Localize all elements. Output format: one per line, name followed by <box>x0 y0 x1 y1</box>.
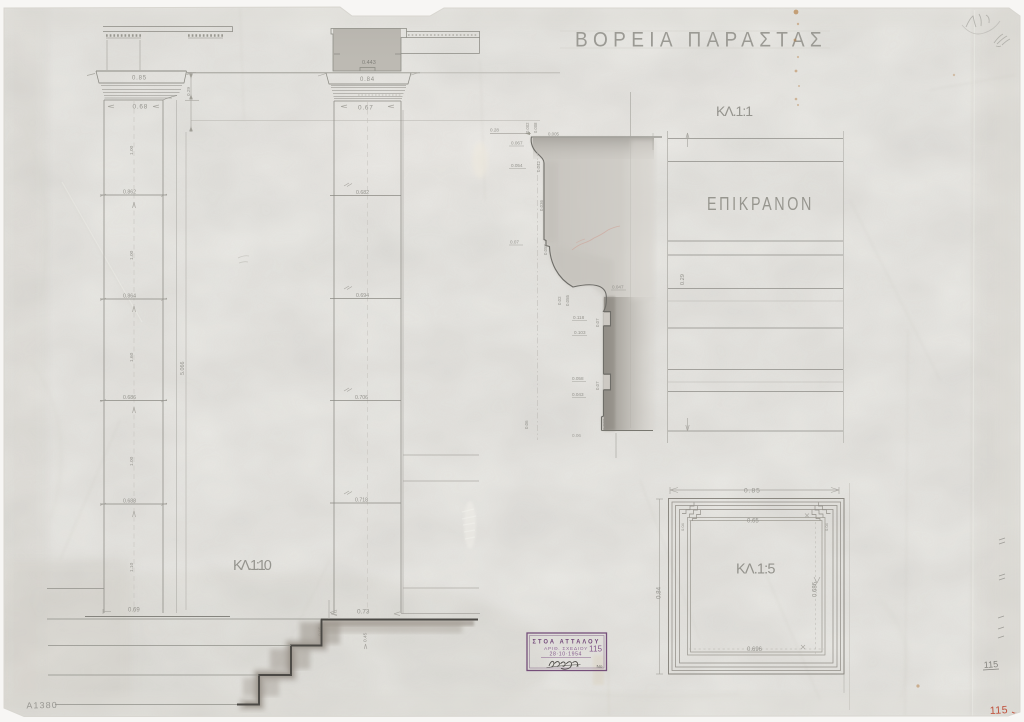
svg-text:0.04: 0.04 <box>680 522 685 531</box>
svg-text:0.443: 0.443 <box>362 60 376 66</box>
svg-text:ΚΛ.1:5: ΚΛ.1:5 <box>736 562 777 578</box>
svg-text:ΑΡΙΘ. ΣΧΕΔΙΟΥ: ΑΡΙΘ. ΣΧΕΔΙΟΥ <box>544 646 588 651</box>
svg-text:0.864: 0.864 <box>123 294 136 300</box>
svg-text:1.00: 1.00 <box>129 145 135 155</box>
svg-text:0.005: 0.005 <box>548 132 560 137</box>
svg-text:0.69: 0.69 <box>128 608 140 614</box>
svg-text:0.682: 0.682 <box>356 190 369 196</box>
svg-text:Νο: Νο <box>597 664 603 669</box>
svg-text:0.04: 0.04 <box>824 522 829 531</box>
svg-text:0.686: 0.686 <box>813 581 819 597</box>
svg-text:115: 115 <box>990 704 1009 717</box>
svg-text:1.10: 1.10 <box>129 562 135 572</box>
svg-text:0.054: 0.054 <box>511 163 523 168</box>
svg-text:0.036: 0.036 <box>539 199 544 211</box>
svg-text:0.862: 0.862 <box>123 190 136 196</box>
svg-text:0.65: 0.65 <box>747 519 759 525</box>
svg-text:0.07: 0.07 <box>510 240 519 245</box>
svg-text:0.29: 0.29 <box>186 87 191 96</box>
svg-text:0.29: 0.29 <box>680 274 686 285</box>
svg-text:0.696: 0.696 <box>747 647 763 653</box>
svg-text:28·10·1954: 28·10·1954 <box>550 652 583 658</box>
svg-text:0.84: 0.84 <box>656 586 663 599</box>
svg-text:115: 115 <box>983 659 998 670</box>
svg-text:0.058: 0.058 <box>543 243 548 255</box>
svg-text:0.06: 0.06 <box>572 433 581 438</box>
svg-text:0.07: 0.07 <box>595 318 600 327</box>
svg-text:0.68: 0.68 <box>133 104 149 111</box>
svg-text:ΚΛ.1:10: ΚΛ.1:10 <box>233 558 273 574</box>
svg-text:0.694: 0.694 <box>356 293 369 299</box>
svg-text:5.066: 5.066 <box>180 362 186 376</box>
svg-text:0.28: 0.28 <box>490 128 499 133</box>
svg-text:115: 115 <box>589 645 602 654</box>
svg-text:0.85: 0.85 <box>744 488 761 495</box>
svg-text:0.055: 0.055 <box>565 294 570 306</box>
svg-text:0.02: 0.02 <box>557 296 562 305</box>
svg-text:ΕΠΙΚΡΑΝΟΝ: ΕΠΙΚΡΑΝΟΝ <box>707 193 814 214</box>
svg-text:0.686: 0.686 <box>123 395 136 401</box>
svg-text:0.118: 0.118 <box>573 315 585 320</box>
svg-text:0.002: 0.002 <box>525 122 530 133</box>
svg-text:0.45: 0.45 <box>363 632 369 642</box>
svg-text:0.042: 0.042 <box>536 160 541 172</box>
svg-text:0.85: 0.85 <box>132 76 147 82</box>
svg-text:0.67: 0.67 <box>358 105 374 112</box>
svg-text:0.077: 0.077 <box>602 418 607 430</box>
svg-text:0.718: 0.718 <box>355 498 368 504</box>
svg-text:1.60: 1.60 <box>129 352 135 362</box>
svg-text:0.058: 0.058 <box>572 376 584 381</box>
svg-text:0.06: 0.06 <box>524 420 529 429</box>
svg-text:Α1380: Α1380 <box>26 700 58 711</box>
svg-text:0.008: 0.008 <box>533 122 538 133</box>
svg-text:0.103: 0.103 <box>574 330 586 335</box>
svg-text:0.07: 0.07 <box>595 381 600 390</box>
svg-text:0.73: 0.73 <box>357 609 370 616</box>
svg-text:0.067: 0.067 <box>511 141 523 146</box>
svg-text:0.84: 0.84 <box>360 77 375 83</box>
svg-text:0.043: 0.043 <box>572 392 584 397</box>
svg-text:1.00: 1.00 <box>129 250 135 260</box>
svg-text:0.688: 0.688 <box>123 499 136 505</box>
svg-text:0.047: 0.047 <box>612 285 624 290</box>
svg-text:0.706: 0.706 <box>355 395 368 401</box>
svg-text:1.00: 1.00 <box>129 456 135 466</box>
svg-text:ΚΛ.1:1: ΚΛ.1:1 <box>716 103 754 119</box>
